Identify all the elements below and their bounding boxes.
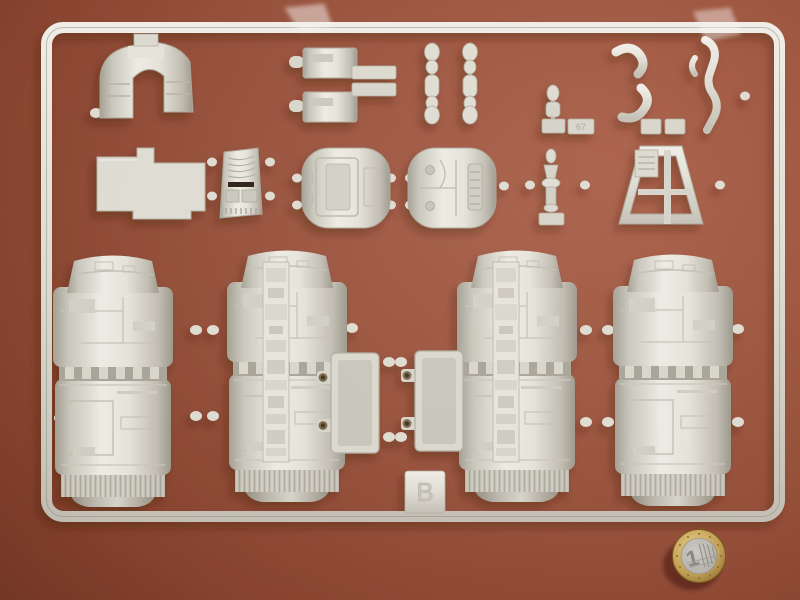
part-linkage-chain-right [463, 43, 478, 124]
part-engine-cylinder-1 [53, 256, 173, 508]
part-hatch-plate [302, 148, 390, 228]
film-piece-2 [694, 8, 740, 41]
part-engine-cylinder-4 [613, 255, 733, 507]
engine-cylinder-2-spine [263, 262, 289, 462]
part-piping-plate [408, 148, 496, 228]
part-l-shaped-plate [97, 148, 205, 219]
part-valve-dumbbell [542, 85, 565, 133]
gate-letter-tab: B [405, 471, 445, 513]
photo: 67 [0, 0, 800, 600]
photo-canvas: 67 [0, 0, 800, 600]
sprue-runner-b: 67 [47, 28, 780, 517]
part-grille-console [220, 148, 262, 218]
part-linkage-chain-left [425, 43, 440, 124]
part-arch-bracket [100, 34, 193, 118]
part-number-tab-label: 67 [576, 122, 586, 132]
engine-cylinder-3-spine [493, 262, 519, 462]
gate-letter: B [416, 477, 433, 507]
euro-coin: 1 [663, 530, 726, 591]
part-trapezoid-frame [619, 146, 703, 224]
